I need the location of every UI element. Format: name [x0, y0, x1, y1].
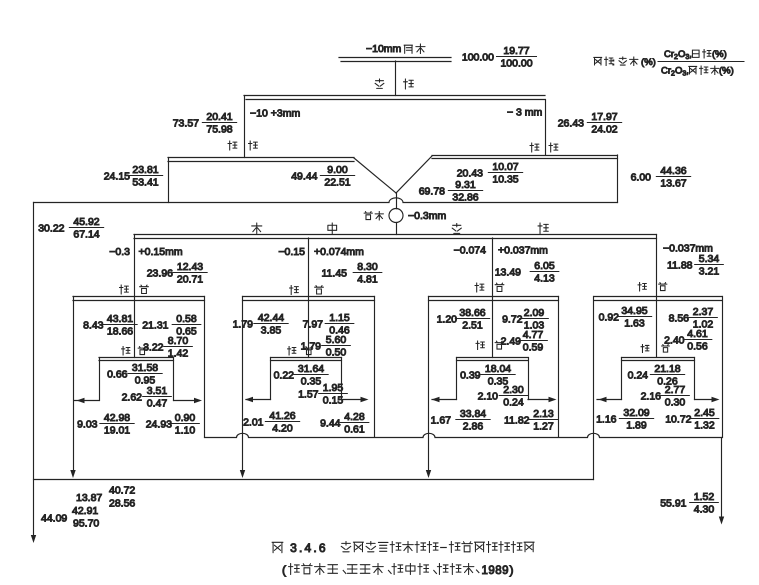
svg-text:44.36: 44.36	[660, 165, 686, 177]
svg-text:Cr2O3,: Cr2O3,	[661, 66, 689, 78]
svg-text:4.81: 4.81	[357, 274, 378, 286]
svg-text:12.43: 12.43	[177, 261, 203, 273]
svg-text:42.91: 42.91	[72, 505, 98, 517]
svg-text:2.13: 2.13	[533, 408, 554, 420]
svg-text:18.66: 18.66	[107, 326, 133, 338]
svg-text:6.00: 6.00	[631, 171, 652, 183]
svg-text:− 3 mm: − 3 mm	[507, 107, 543, 119]
svg-text:0.66: 0.66	[107, 368, 128, 380]
svg-text:2.40: 2.40	[664, 334, 685, 346]
svg-text:0.61: 0.61	[344, 424, 365, 436]
svg-text:1.32: 1.32	[694, 420, 715, 432]
svg-text:1.63: 1.63	[624, 318, 645, 330]
svg-text:9.03: 9.03	[77, 418, 98, 430]
svg-text:3.21: 3.21	[699, 266, 720, 278]
svg-text:0.90: 0.90	[175, 412, 196, 424]
svg-text:9.44: 9.44	[320, 417, 341, 429]
svg-text:75.98: 75.98	[206, 124, 232, 136]
svg-text:53.41: 53.41	[132, 177, 158, 189]
svg-text:0.58: 0.58	[176, 313, 197, 325]
svg-text:33.84: 33.84	[460, 408, 486, 420]
svg-text:3.22: 3.22	[143, 341, 164, 353]
svg-text:2.77: 2.77	[665, 384, 686, 396]
svg-text:0.22: 0.22	[274, 369, 295, 381]
svg-text:1.52: 1.52	[694, 491, 715, 503]
svg-text:1.16: 1.16	[596, 413, 617, 425]
svg-text:2.16: 2.16	[641, 390, 662, 402]
svg-text:38.66: 38.66	[459, 307, 485, 319]
svg-text:20.43: 20.43	[457, 167, 483, 179]
svg-text:0.30: 0.30	[665, 397, 686, 409]
svg-text:(%): (%)	[719, 66, 734, 77]
svg-text:5.60: 5.60	[326, 334, 347, 346]
svg-text:24.93: 24.93	[146, 418, 172, 430]
svg-text:0.24: 0.24	[503, 397, 524, 409]
svg-text:4.20: 4.20	[272, 423, 293, 435]
svg-text:3.85: 3.85	[261, 325, 282, 337]
svg-text:8.30: 8.30	[357, 261, 378, 273]
svg-text:4.13: 4.13	[534, 273, 555, 285]
svg-text:13.49: 13.49	[495, 266, 521, 278]
svg-text:13.87: 13.87	[76, 492, 102, 504]
svg-text:23.96: 23.96	[147, 267, 173, 279]
svg-text:0.47: 0.47	[147, 398, 168, 410]
svg-text:100.00: 100.00	[500, 58, 532, 70]
svg-text:5.34: 5.34	[699, 253, 720, 265]
svg-text:1.89: 1.89	[626, 420, 647, 432]
svg-text:0.35: 0.35	[301, 376, 322, 388]
svg-text:43.81: 43.81	[107, 313, 133, 325]
svg-text:8.56: 8.56	[669, 312, 690, 324]
svg-text:2.10: 2.10	[478, 390, 499, 402]
svg-text:0.15: 0.15	[323, 395, 344, 407]
svg-text:−10 +3mm: −10 +3mm	[250, 108, 300, 120]
svg-text:40.72: 40.72	[109, 485, 135, 497]
svg-text:17.97: 17.97	[591, 111, 617, 123]
svg-text:4.30: 4.30	[694, 504, 715, 516]
svg-text:30.22: 30.22	[38, 222, 64, 234]
svg-text:55.91: 55.91	[660, 497, 686, 509]
svg-text:31.64: 31.64	[298, 363, 324, 375]
svg-text:0.50: 0.50	[326, 347, 347, 359]
svg-text:1.20: 1.20	[437, 313, 458, 325]
svg-text:4.61: 4.61	[687, 328, 708, 340]
svg-text:10.35: 10.35	[492, 174, 518, 186]
svg-text::: :	[612, 57, 615, 68]
svg-text:24.02: 24.02	[591, 124, 617, 136]
svg-text:49.44: 49.44	[291, 170, 317, 182]
svg-text:2.01: 2.01	[243, 416, 264, 428]
svg-text:10.72: 10.72	[665, 413, 691, 425]
svg-text:−0.15: −0.15	[278, 246, 305, 258]
svg-text:3.51: 3.51	[147, 385, 168, 397]
svg-text:0.92: 0.92	[599, 311, 620, 323]
svg-text:2.86: 2.86	[463, 421, 484, 433]
svg-text:(%): (%)	[712, 49, 727, 60]
svg-text:1.10: 1.10	[175, 425, 196, 437]
svg-text:−0.3mm: −0.3mm	[408, 210, 446, 222]
svg-text:2.37: 2.37	[693, 306, 714, 318]
svg-text:100.00: 100.00	[462, 51, 494, 63]
svg-text:2.45: 2.45	[694, 407, 715, 419]
svg-text:11.45: 11.45	[322, 267, 348, 279]
svg-text:32.86: 32.86	[452, 192, 478, 204]
svg-text:−0.074: −0.074	[454, 245, 487, 257]
svg-text:1.15: 1.15	[329, 312, 350, 324]
svg-text:18.04: 18.04	[485, 363, 511, 375]
svg-text:0.59: 0.59	[523, 342, 544, 354]
svg-text:42.98: 42.98	[104, 412, 130, 424]
svg-text:22.51: 22.51	[324, 177, 350, 189]
svg-text:2.51: 2.51	[462, 320, 483, 332]
svg-text:24.15: 24.15	[104, 170, 130, 182]
svg-text:1.67: 1.67	[431, 414, 452, 426]
svg-text:2.49: 2.49	[501, 335, 522, 347]
svg-text:9.31: 9.31	[455, 179, 476, 191]
svg-text:−0.3: −0.3	[109, 246, 130, 258]
svg-text:31.58: 31.58	[132, 362, 158, 374]
svg-text:8.43: 8.43	[83, 319, 104, 331]
svg-text:Cr2O3,: Cr2O3,	[664, 49, 692, 61]
svg-text:10.07: 10.07	[492, 161, 518, 173]
svg-text:6.05: 6.05	[534, 260, 555, 272]
svg-text:26.43: 26.43	[558, 117, 584, 129]
svg-text:9.00: 9.00	[327, 164, 348, 176]
svg-text:1.57: 1.57	[298, 388, 319, 400]
svg-text:21.18: 21.18	[654, 363, 680, 375]
svg-text:2.62: 2.62	[122, 391, 143, 403]
svg-text:32.09: 32.09	[623, 407, 649, 419]
svg-text:1.27: 1.27	[533, 421, 554, 433]
svg-text:34.95: 34.95	[621, 305, 647, 317]
svg-text:9.72: 9.72	[502, 313, 523, 325]
svg-text:21.31: 21.31	[142, 319, 168, 331]
svg-text:0.56: 0.56	[687, 341, 708, 353]
svg-text:2.30: 2.30	[503, 384, 524, 396]
svg-text:44.09: 44.09	[41, 513, 67, 525]
svg-text:11.88: 11.88	[667, 259, 693, 271]
svg-text:28.56: 28.56	[109, 498, 135, 510]
svg-text:1989: 1989	[482, 565, 510, 577]
svg-text:): )	[510, 563, 514, 577]
svg-text:2.09: 2.09	[524, 307, 545, 319]
svg-text:0.24: 0.24	[628, 369, 649, 381]
svg-text:42.44: 42.44	[258, 312, 284, 324]
svg-text:−10mm: −10mm	[366, 43, 402, 55]
svg-text:19.77: 19.77	[503, 45, 529, 57]
svg-text:(%): (%)	[641, 57, 656, 68]
svg-text:+0.037mm: +0.037mm	[498, 245, 548, 257]
svg-text:11.82: 11.82	[504, 414, 530, 426]
svg-text:41.26: 41.26	[269, 410, 295, 422]
svg-text:20.41: 20.41	[206, 111, 232, 123]
svg-text:0.39: 0.39	[460, 369, 481, 381]
svg-text:1.95: 1.95	[323, 382, 344, 394]
svg-text:45.92: 45.92	[73, 216, 99, 228]
svg-text:95.70: 95.70	[73, 518, 99, 530]
svg-text:8.70: 8.70	[168, 335, 189, 347]
svg-text:73.57: 73.57	[173, 117, 199, 129]
svg-text:3.4.6: 3.4.6	[290, 541, 328, 555]
svg-text:4.77: 4.77	[523, 329, 544, 341]
svg-text:20.71: 20.71	[177, 274, 203, 286]
svg-text:7.97: 7.97	[303, 318, 324, 330]
svg-text:23.81: 23.81	[132, 164, 158, 176]
svg-text:1.79: 1.79	[233, 318, 254, 330]
svg-text:69.78: 69.78	[419, 185, 445, 197]
svg-text:+0.074mm: +0.074mm	[314, 246, 364, 258]
svg-text:13.67: 13.67	[660, 178, 686, 190]
svg-text:19.01: 19.01	[104, 425, 130, 437]
svg-text:4.28: 4.28	[344, 411, 365, 423]
svg-text:+0.15mm: +0.15mm	[139, 246, 183, 258]
svg-text:67.14: 67.14	[73, 229, 99, 241]
svg-text:(: (	[282, 563, 286, 577]
